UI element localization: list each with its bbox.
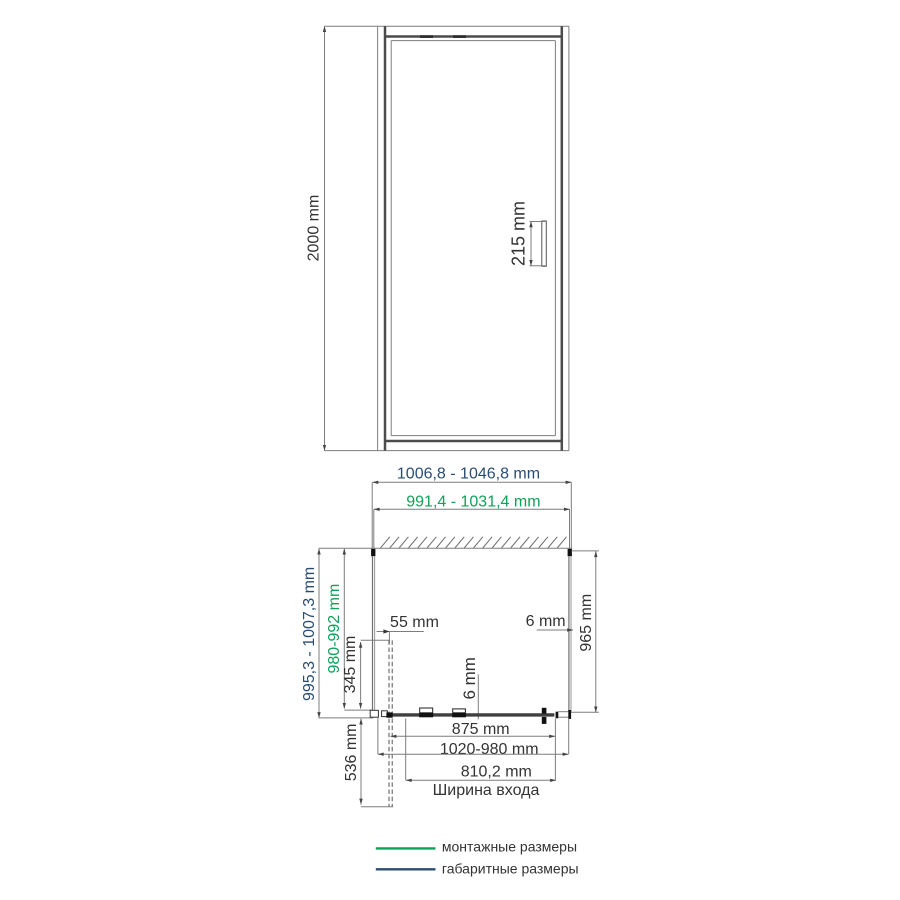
svg-text:габаритные размеры: габаритные размеры — [442, 861, 579, 877]
svg-text:536 mm: 536 mm — [343, 724, 360, 782]
svg-text:Ширина входа: Ширина входа — [433, 782, 540, 799]
svg-text:монтажные размеры: монтажные размеры — [442, 838, 577, 854]
svg-text:2000 mm: 2000 mm — [306, 195, 323, 262]
svg-text:1020-980 mm: 1020-980 mm — [440, 741, 539, 758]
svg-text:215 mm: 215 mm — [509, 201, 529, 266]
svg-text:875 mm: 875 mm — [452, 721, 510, 738]
svg-text:1006,8 - 1046,8 mm: 1006,8 - 1046,8 mm — [397, 466, 540, 483]
svg-text:980-992 mm: 980-992 mm — [326, 584, 343, 674]
svg-text:810,2 mm: 810,2 mm — [461, 764, 532, 781]
svg-text:995,3 - 1007,3 mm: 995,3 - 1007,3 mm — [301, 567, 318, 701]
svg-text:965 mm: 965 mm — [578, 594, 595, 652]
svg-text:991,4 - 1031,4 mm: 991,4 - 1031,4 mm — [406, 494, 540, 511]
svg-text:6 mm: 6 mm — [460, 657, 479, 700]
svg-text:55 mm: 55 mm — [390, 614, 439, 631]
svg-text:345 mm: 345 mm — [342, 636, 359, 694]
svg-text:6 mm: 6 mm — [526, 613, 566, 630]
